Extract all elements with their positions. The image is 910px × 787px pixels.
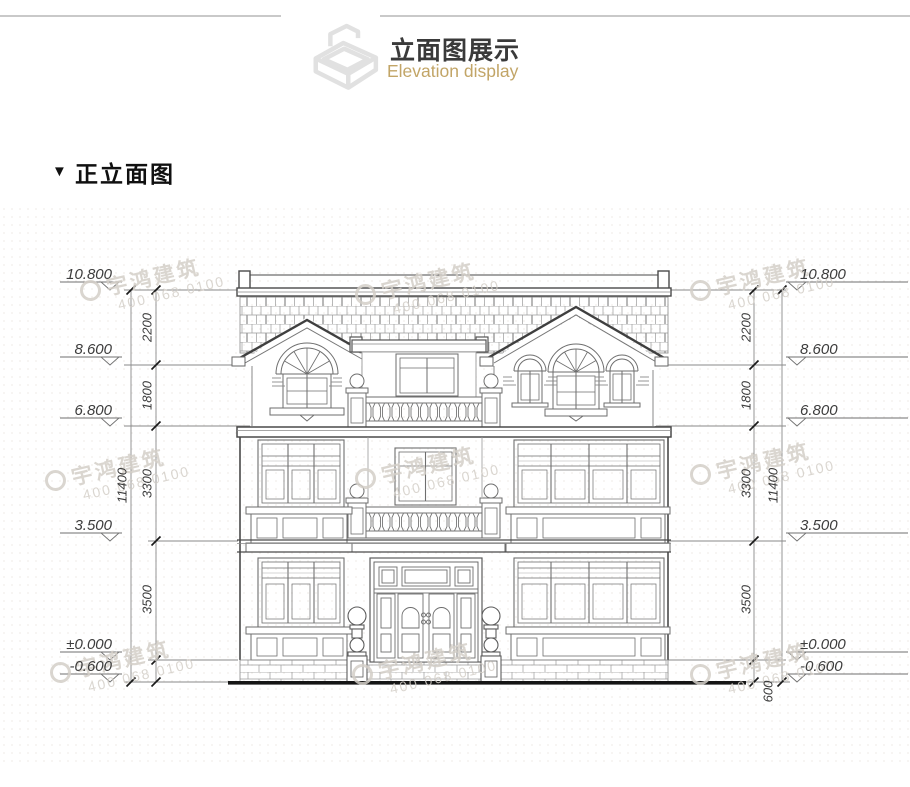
level-label: ±0.000: [54, 636, 112, 653]
level-label: -0.600: [800, 658, 843, 675]
apron-left-1f: [246, 627, 352, 660]
roof-parapet: [237, 271, 671, 296]
page: 立面图展示 Elevation display ▼ 正立面图: [0, 0, 910, 787]
entrance-post-right: [481, 607, 501, 682]
chain-dimension: 1800: [140, 366, 155, 426]
section-title: 正立面图: [75, 155, 175, 189]
balcony-door-2f: [395, 448, 456, 505]
overall-dimension: 11400: [115, 456, 130, 516]
level-label: 3.500: [54, 517, 112, 534]
level-label: 10.800: [800, 266, 846, 283]
balcony-second-floor: [343, 484, 505, 552]
level-label: 3.500: [800, 517, 838, 534]
header-divider-right: [380, 15, 910, 17]
chain-dimension: 2200: [739, 298, 754, 358]
bay-window-right-2f: [514, 440, 664, 507]
floor-band-6800: [237, 427, 671, 437]
apron-left-2f: [246, 507, 352, 552]
bay-window-left-1f: [258, 558, 344, 627]
bay-window-left-2f: [258, 440, 344, 507]
apron-right-2f: [506, 507, 670, 552]
chain-dimension: 3300: [140, 454, 155, 514]
level-label: -0.600: [54, 658, 112, 675]
header-divider-left: [0, 15, 281, 17]
level-label: 6.800: [54, 402, 112, 419]
level-label: 8.600: [54, 341, 112, 358]
chain-dimension: 3500: [140, 570, 155, 630]
chain-dimension: 600: [761, 662, 776, 722]
chain-dimension: 1800: [739, 366, 754, 426]
entrance-door: [370, 558, 482, 662]
center-dormer: [350, 337, 488, 398]
level-label: 10.800: [54, 266, 112, 283]
isometric-house-icon: [306, 20, 384, 92]
balusters: [369, 403, 479, 421]
chain-dimension: 3500: [739, 570, 754, 630]
triangle-marker-icon: ▼: [52, 163, 67, 180]
chain-dimension: 2200: [140, 298, 155, 358]
apron-right-1f: [506, 627, 670, 660]
bay-window-right-1f: [514, 558, 664, 627]
level-label: ±0.000: [800, 636, 846, 653]
page-subtitle: Elevation display: [387, 61, 518, 82]
ground-line: [228, 681, 746, 685]
overall-dimension: 11400: [766, 456, 781, 516]
chain-dimension: 3300: [739, 454, 754, 514]
level-label: 6.800: [800, 402, 838, 419]
level-label: 8.600: [800, 341, 838, 358]
entrance-post-left: [347, 607, 367, 682]
brick-plinth: [240, 660, 668, 682]
